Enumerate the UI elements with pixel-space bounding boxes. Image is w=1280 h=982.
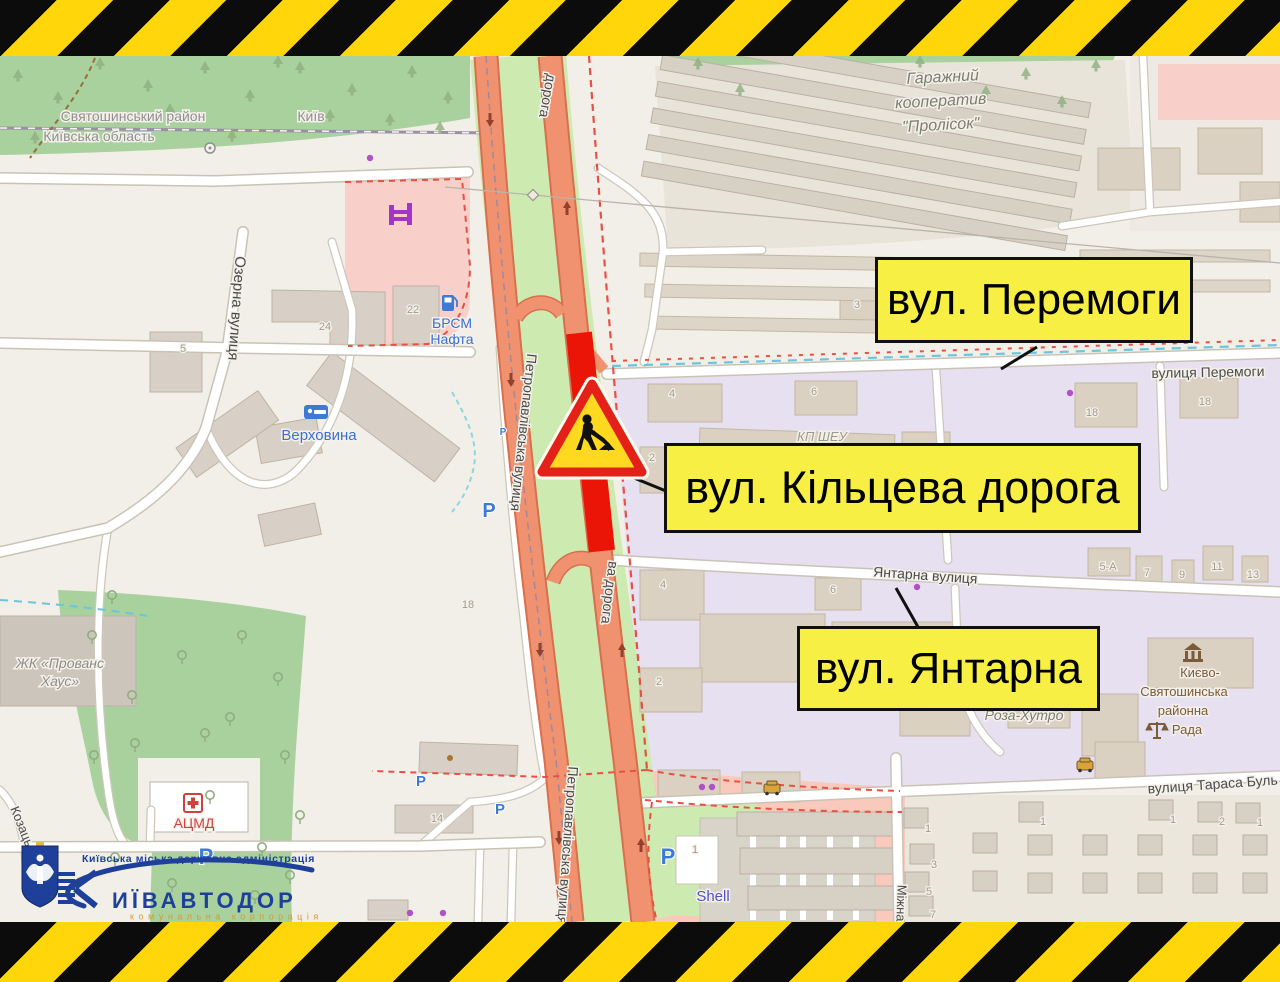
marker-dot: [209, 147, 212, 150]
cross-v: [191, 798, 195, 809]
k-bar: [58, 900, 75, 904]
callout-yantarna-label: вул. Янтарна: [815, 644, 1082, 694]
taxi-wheel: [1078, 769, 1082, 773]
taxi-wheel: [765, 792, 769, 796]
street-label: Рада: [1172, 722, 1203, 737]
column: [1192, 651, 1195, 659]
garage-bar: [737, 812, 897, 836]
house-number: 14: [431, 813, 443, 825]
street-label: районна: [1158, 703, 1209, 718]
street-label: АЦМД: [174, 815, 215, 831]
gate-post: [407, 203, 412, 225]
garage-cell: [1193, 835, 1217, 855]
garage-cell: [1028, 835, 1052, 855]
house-number: 18: [1086, 407, 1098, 419]
house-number: 2: [649, 452, 655, 464]
garage-cell: [1193, 873, 1217, 893]
callout-kiltseva-label: вул. Кільцева дорога: [685, 462, 1120, 514]
house-number: 3: [931, 859, 937, 871]
house-number: 18: [462, 599, 474, 611]
house-number: 2: [656, 676, 662, 688]
gate-rail: [394, 217, 407, 221]
street-label: Київська область: [43, 128, 154, 144]
house-number: 11: [1211, 561, 1222, 573]
house-number: 13: [1247, 569, 1259, 581]
garage-cell: [973, 833, 997, 853]
hotel-bed-icon: [304, 405, 328, 419]
k-bar: [58, 893, 75, 897]
k-bar: [58, 886, 75, 890]
house-number: 5: [180, 343, 186, 355]
house-number: 1: [692, 844, 698, 856]
garage-cell: [1138, 873, 1162, 893]
street-label: Міжна: [893, 884, 909, 922]
gate-post: [389, 205, 394, 225]
bed-mattress: [314, 410, 326, 414]
house-number: 5-А: [1099, 561, 1117, 573]
poi-dot-icon: [447, 755, 453, 761]
pump-body: [442, 295, 454, 311]
rada-building: [1148, 638, 1253, 688]
house-number: 9: [1179, 569, 1185, 581]
callout-kiltseva: вул. Кільцева дорога: [664, 443, 1141, 533]
house-number: 7: [930, 909, 936, 921]
road-closure-announcement: PPPPPPP: [0, 0, 1280, 982]
taxi-wheel: [775, 792, 779, 796]
building: [419, 742, 518, 775]
shop-dot-icon: [367, 155, 373, 161]
taxi-roof: [767, 781, 777, 785]
house-number: 6: [830, 584, 836, 596]
building: [640, 570, 704, 620]
building: [1098, 148, 1180, 190]
angel-robe: [37, 866, 43, 884]
building: [648, 384, 722, 422]
shop-dot-icon: [699, 784, 705, 790]
south-garage-ground: [905, 795, 1280, 922]
hazard-stripe-bottom: [0, 922, 1280, 982]
street-label: БРСМ: [432, 315, 472, 331]
gate-rail: [394, 210, 407, 214]
angel-head: [37, 855, 44, 862]
building: [795, 381, 857, 415]
parking-icon: P: [416, 773, 426, 790]
k-bar: [58, 872, 75, 876]
parking-icon: P: [482, 500, 495, 522]
building: [368, 900, 408, 920]
hazard-stripe-top: [0, 0, 1280, 56]
base: [1183, 659, 1203, 662]
garage-cell: [1243, 873, 1267, 893]
street-label: Києво-: [1180, 665, 1220, 680]
street-label: Святошинська: [1140, 684, 1228, 699]
logo-wordmark: ИЇВАВТОДОР: [112, 888, 297, 913]
k-bar: [58, 879, 75, 883]
pump-window: [445, 298, 452, 303]
garage-cell: [1083, 873, 1107, 893]
street-label: вулиця Перемоги: [1151, 363, 1264, 381]
street-label: КП ШЕУ: [797, 429, 848, 444]
building: [815, 578, 861, 610]
house-number: 24: [319, 321, 331, 333]
garage-bar: [748, 886, 900, 910]
street-label: Верховина: [281, 427, 357, 444]
hospital-cross-icon: [184, 794, 202, 812]
parking-icon: P: [500, 427, 507, 438]
parking-icon: P: [661, 844, 676, 869]
house-number: 2: [1219, 816, 1225, 828]
house-number: 3: [854, 299, 860, 311]
street-label: Хаус»: [40, 673, 80, 689]
house-number: 1: [925, 823, 931, 835]
house-number: 4: [660, 579, 666, 591]
building: [640, 668, 702, 712]
house-number: 5: [926, 886, 932, 898]
shop-dot-icon: [1067, 390, 1073, 396]
building: [1075, 383, 1137, 427]
ne-pink-block: [1158, 64, 1280, 120]
house-number: 18: [1199, 396, 1211, 408]
street-label: Нафта: [430, 331, 473, 347]
house-number: 4: [669, 388, 675, 400]
house-number: 1: [1170, 814, 1176, 826]
house-number: 7: [1144, 567, 1150, 579]
bed-pillow: [308, 409, 312, 413]
column: [1185, 651, 1188, 659]
taxi-wheel: [1088, 769, 1092, 773]
street-label: ЖК «Прованс: [15, 655, 104, 671]
column: [1198, 651, 1201, 659]
house-number: 6: [811, 386, 817, 398]
south-parking: [700, 812, 902, 922]
parking-icon: P: [495, 801, 505, 818]
house-number: 22: [407, 304, 419, 316]
shop-dot-icon: [709, 784, 715, 790]
street-label: Святошинський район: [61, 108, 206, 124]
garage-cell: [973, 871, 997, 891]
shop-dot-icon: [440, 910, 446, 916]
building: [1198, 128, 1262, 174]
taxi-roof: [1080, 758, 1090, 762]
street-label: Київ: [297, 108, 324, 124]
garage-cell: [1243, 835, 1267, 855]
garage-bar: [740, 848, 902, 874]
callout-yantarna: вул. Янтарна: [797, 626, 1100, 711]
callout-peremohy-label: вул. Перемоги: [887, 275, 1181, 325]
street-label: Shell: [696, 888, 729, 905]
shop-dot-icon: [914, 584, 920, 590]
garage-cell: [1028, 873, 1052, 893]
garage-cell: [1138, 835, 1162, 855]
logo-subtitle: комунальна корпорація: [130, 912, 323, 922]
house-number: 1: [1040, 816, 1046, 828]
boundary-marker-icon: [205, 143, 215, 153]
garage-cell: [1083, 835, 1107, 855]
shop-dot-icon: [407, 910, 413, 916]
house-number: 1: [1257, 817, 1263, 829]
callout-peremohy: вул. Перемоги: [875, 257, 1193, 343]
